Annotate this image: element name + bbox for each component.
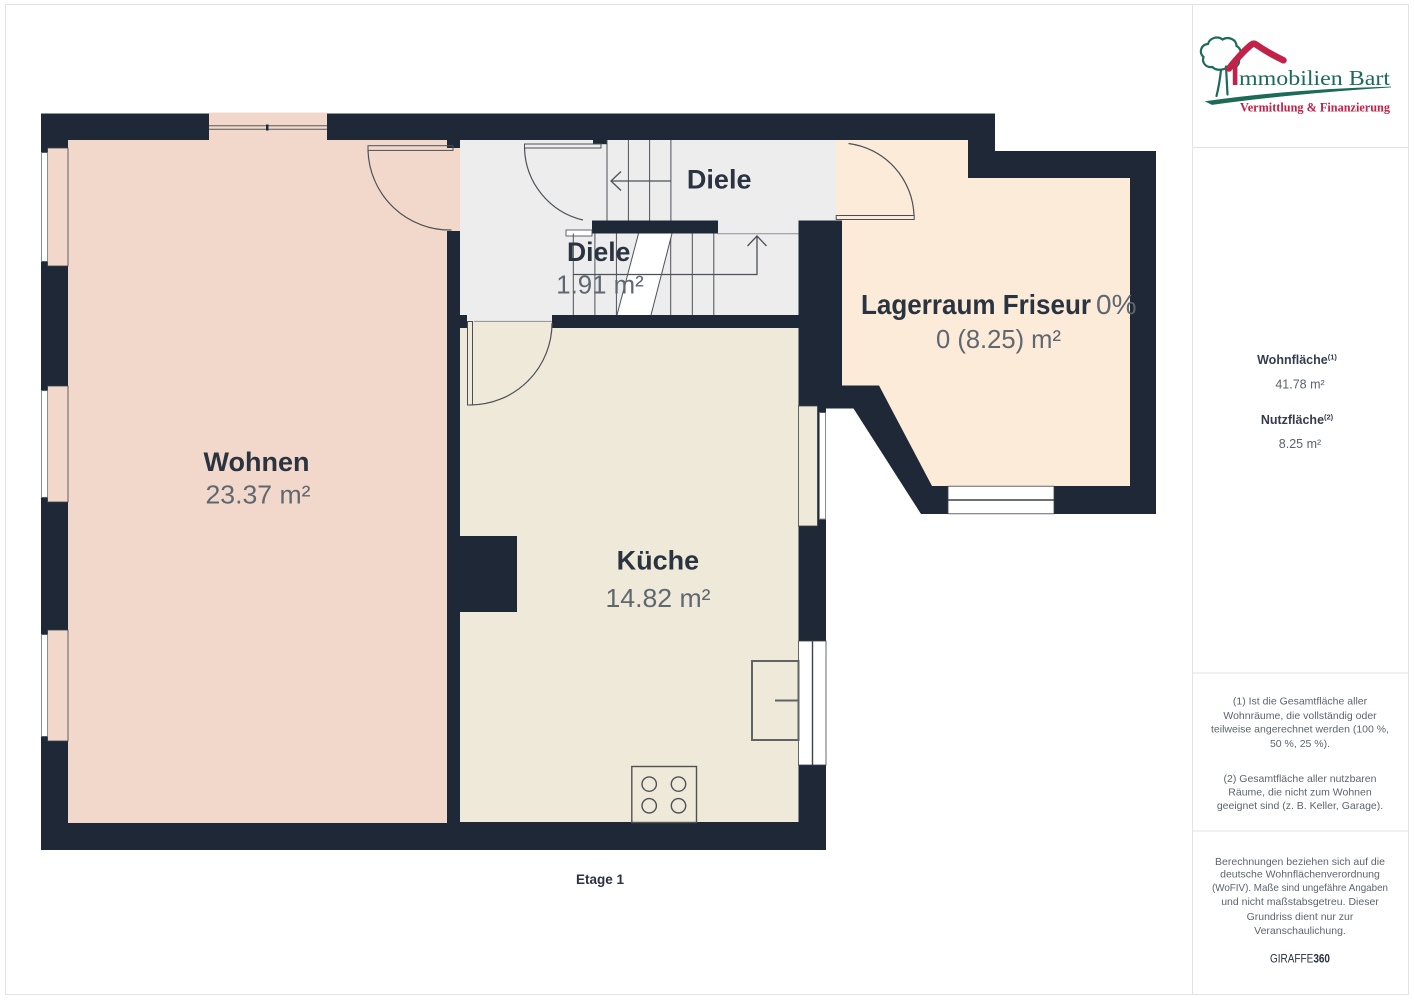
svg-text:Etage 1: Etage 1	[576, 872, 625, 887]
svg-text:23.37 m²: 23.37 m²	[206, 480, 311, 510]
svg-text:Küche: Küche	[617, 546, 700, 576]
svg-text:mmobilien Bart: mmobilien Bart	[1239, 66, 1390, 90]
svg-text:Wohnen: Wohnen	[204, 447, 310, 477]
svg-text:Wohnfläche(1): Wohnfläche(1)	[1257, 353, 1337, 368]
svg-text:0%: 0%	[1096, 289, 1136, 320]
svg-text:Räume, die nicht zum Wohnen: Räume, die nicht zum Wohnen	[1228, 787, 1372, 799]
svg-text:0 (8.25) m²: 0 (8.25) m²	[936, 324, 1061, 354]
svg-text:Vermittlung & Finanzierung: Vermittlung & Finanzierung	[1240, 100, 1390, 115]
svg-text:Nutzfläche(2): Nutzfläche(2)	[1261, 413, 1334, 428]
svg-text:Diele: Diele	[687, 165, 752, 195]
svg-text:teilweise angerechnet werden (: teilweise angerechnet werden (100 %,	[1211, 724, 1389, 736]
svg-text:Veranschaulichung.: Veranschaulichung.	[1254, 925, 1346, 937]
svg-text:(1) Ist die Gesamtfläche aller: (1) Ist die Gesamtfläche aller	[1233, 696, 1368, 708]
svg-text:Lagerraum Friseur: Lagerraum Friseur	[861, 289, 1091, 320]
svg-text:GIRAFFE360: GIRAFFE360	[1270, 954, 1330, 966]
svg-text:Wohnräume, die vollständig ode: Wohnräume, die vollständig oder	[1223, 710, 1377, 722]
svg-text:50 %, 25 %).: 50 %, 25 %).	[1270, 738, 1330, 750]
svg-text:(2) Gesamtfläche aller nutzbar: (2) Gesamtfläche aller nutzbaren	[1224, 773, 1377, 785]
svg-text:1.91 m²: 1.91 m²	[556, 270, 644, 300]
svg-text:deutsche Wohnflächenverordnung: deutsche Wohnflächenverordnung	[1220, 868, 1380, 880]
svg-text:und nicht maßstabsgetreu. Dies: und nicht maßstabsgetreu. Dieser	[1221, 896, 1379, 908]
svg-text:14.82 m²: 14.82 m²	[606, 583, 711, 613]
svg-text:Diele: Diele	[567, 237, 630, 267]
svg-text:41.78 m²: 41.78 m²	[1275, 378, 1324, 392]
svg-text:Berechnungen beziehen sich auf: Berechnungen beziehen sich auf die	[1215, 856, 1385, 868]
svg-text:(WoFIV). Maße sind ungefähre A: (WoFIV). Maße sind ungefähre Angaben	[1212, 882, 1388, 894]
svg-text:Grundriss dient nur zur: Grundriss dient nur zur	[1247, 911, 1354, 923]
svg-text:geeignet sind (z. B. Keller, G: geeignet sind (z. B. Keller, Garage).	[1217, 800, 1383, 812]
svg-text:8.25 m²: 8.25 m²	[1279, 437, 1321, 451]
